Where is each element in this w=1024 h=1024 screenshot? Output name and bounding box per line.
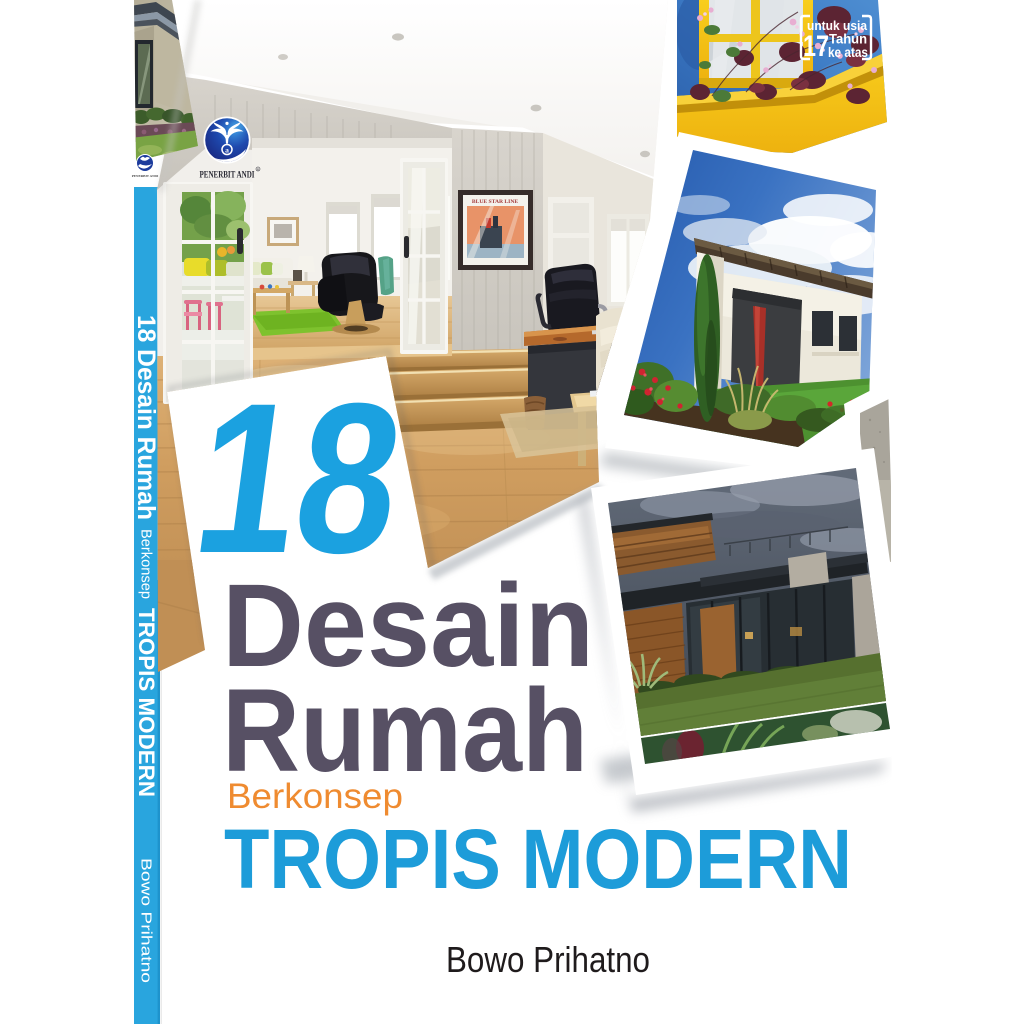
svg-text:PENERBIT ANDI: PENERBIT ANDI — [132, 174, 159, 178]
svg-text:ke atas: ke atas — [828, 45, 868, 60]
svg-text:17: 17 — [803, 30, 829, 63]
svg-text:Bowo Prihatno: Bowo Prihatno — [138, 858, 155, 983]
svg-text:Berkonsep: Berkonsep — [227, 777, 403, 816]
svg-text:18 Desain Rumah: 18 Desain Rumah — [132, 315, 160, 520]
svg-text:Bowo Prihatno: Bowo Prihatno — [446, 939, 650, 980]
svg-text:PENERBIT ANDI: PENERBIT ANDI — [200, 170, 255, 180]
svg-text:TROPIS MODERN: TROPIS MODERN — [134, 608, 159, 797]
svg-text:Berkonsep: Berkonsep — [138, 529, 155, 599]
svg-text:a: a — [225, 146, 229, 155]
svg-text:TROPIS MODERN: TROPIS MODERN — [224, 812, 852, 906]
svg-text:BLUE STAR LINE: BLUE STAR LINE — [472, 199, 518, 205]
